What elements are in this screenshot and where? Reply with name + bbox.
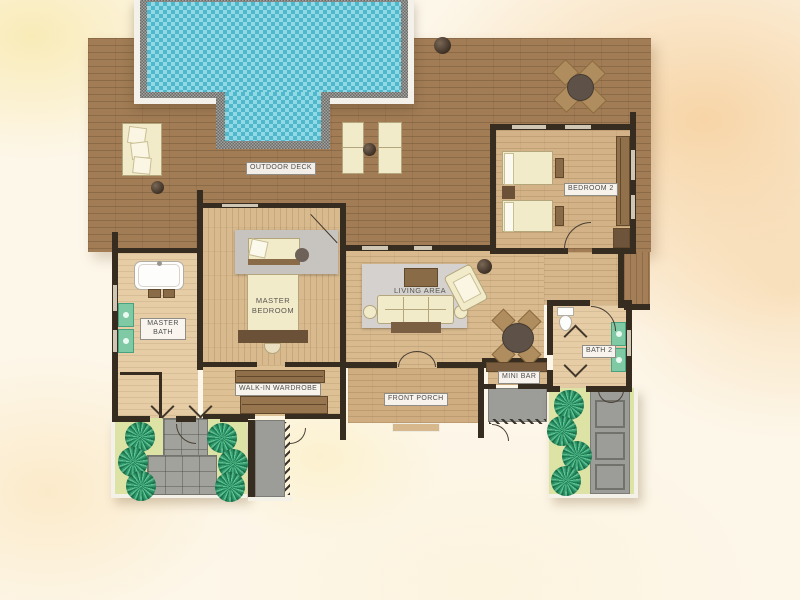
side-path (255, 420, 285, 497)
sofa-seam (428, 297, 429, 322)
bath-mat (148, 289, 161, 298)
label-bath-2: BATH 2 (582, 345, 616, 358)
entry-hatch (489, 419, 546, 424)
window (631, 150, 635, 180)
window (414, 246, 432, 250)
label-walk-in-wardrobe: WALK-IN WARDROBE (235, 383, 321, 396)
pool-water-extension (225, 92, 321, 141)
pillow (504, 202, 514, 232)
sink-bowl (123, 338, 129, 344)
window (113, 285, 117, 311)
window (627, 330, 631, 356)
paver (595, 464, 625, 490)
sofa-seam (385, 309, 446, 310)
bathtub-inner (138, 264, 180, 287)
lounge-chair-seam (379, 147, 401, 148)
door-arc (290, 428, 306, 444)
corner-cabinet (613, 228, 630, 248)
closet (616, 136, 630, 226)
label-outdoor-deck: OUTDOOR DECK (246, 162, 316, 175)
wall (340, 362, 346, 440)
wall (220, 416, 248, 422)
door-arc (492, 424, 509, 441)
path-wall (248, 420, 255, 497)
sofa-base (391, 322, 441, 333)
side-table (363, 305, 377, 319)
wall (346, 362, 397, 368)
wall (112, 232, 118, 422)
ottoman (295, 248, 309, 262)
wall (547, 386, 560, 392)
cushion (248, 238, 268, 258)
daybed-cushion (132, 156, 152, 175)
floor-plan: OUTDOOR DECK BEDROOM 2 MASTER BEDROOM LI… (0, 0, 800, 600)
wall (586, 386, 626, 392)
wall (176, 416, 196, 422)
pillow (504, 153, 514, 185)
side-table (363, 143, 376, 156)
lounge-chair-seam (343, 147, 363, 148)
wall (197, 362, 257, 367)
plant-pot (434, 37, 451, 54)
window (113, 330, 117, 352)
bed-bench (555, 206, 564, 226)
bathtub-faucet (157, 261, 162, 266)
paver (595, 432, 625, 460)
window (512, 125, 546, 129)
wall (482, 384, 496, 389)
hallway-floor (544, 252, 618, 305)
label-bedroom-2: BEDROOM 2 (564, 183, 618, 196)
label-master-bath: MASTER BATH (140, 318, 186, 340)
wall (340, 203, 346, 370)
wall (547, 300, 553, 355)
wall (592, 248, 636, 254)
wardrobe-cabinet (240, 396, 328, 414)
label-master-bedroom: MASTER BEDROOM (249, 296, 297, 316)
dining-table (502, 323, 534, 353)
shrub (551, 466, 581, 496)
plant-pot (151, 181, 164, 194)
wall (478, 368, 484, 438)
wall (630, 112, 636, 254)
wall (547, 300, 590, 306)
label-mini-bar: MINI BAR (498, 371, 540, 384)
label-living-area: LIVING AREA (394, 286, 446, 296)
wall (490, 124, 496, 254)
plant-pot (477, 259, 492, 274)
sink-bowl (123, 312, 129, 318)
wall (285, 362, 346, 367)
sofa-seam (403, 297, 404, 322)
pool-water (147, 2, 401, 92)
bath-mat (163, 289, 175, 298)
window (631, 195, 635, 219)
wall (120, 372, 162, 375)
shrub (215, 472, 245, 502)
nightstand (502, 186, 515, 199)
wall (285, 414, 340, 419)
wall (490, 248, 568, 254)
wall (518, 384, 547, 389)
lounge-chair (378, 122, 402, 174)
sink-bowl (616, 331, 622, 337)
bed-platform (238, 330, 308, 343)
path-edge (248, 497, 292, 501)
wardrobe-line (237, 376, 323, 377)
shrub (126, 471, 156, 501)
label-front-porch: FRONT PORCH (384, 393, 448, 406)
bed-bench (555, 158, 564, 178)
wall (624, 304, 650, 310)
wall (112, 416, 150, 422)
lounge-chair (342, 122, 364, 174)
window (362, 246, 388, 250)
front-porch-step (392, 423, 440, 432)
window (565, 125, 591, 129)
left-garden-path-bottom (147, 455, 217, 495)
wall (112, 248, 203, 253)
coffee-table (404, 268, 438, 287)
outdoor-dining-table (567, 74, 594, 101)
wardrobe-line (242, 404, 326, 405)
daybed-base (248, 259, 300, 265)
paver (595, 400, 625, 428)
window (222, 204, 258, 207)
sink-bowl (616, 357, 622, 363)
closet-line (620, 138, 621, 224)
wall (197, 190, 203, 370)
mini-bar-entry-path (488, 388, 547, 422)
